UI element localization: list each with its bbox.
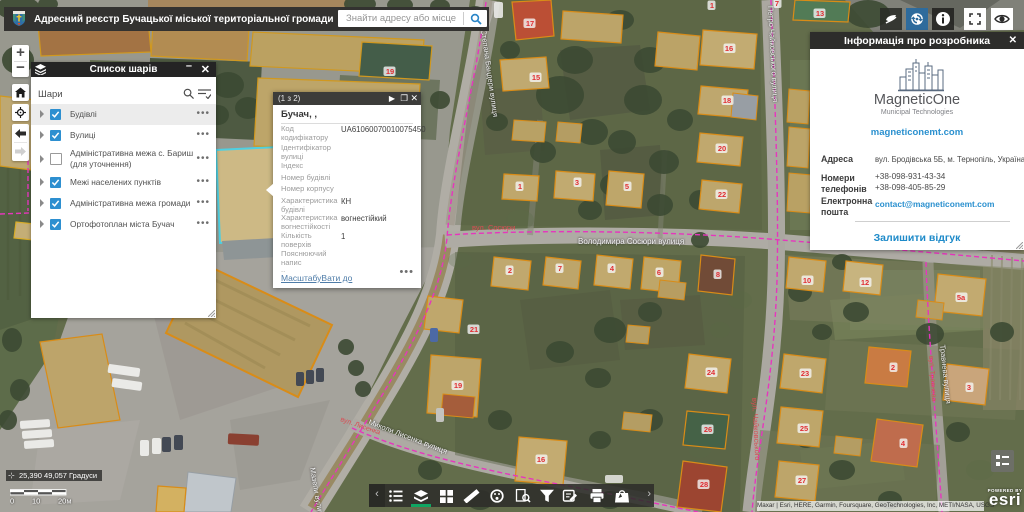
svg-text:10: 10 [32, 497, 40, 506]
svg-text:0: 0 [10, 497, 14, 506]
svg-text:20м: 20м [58, 497, 72, 506]
